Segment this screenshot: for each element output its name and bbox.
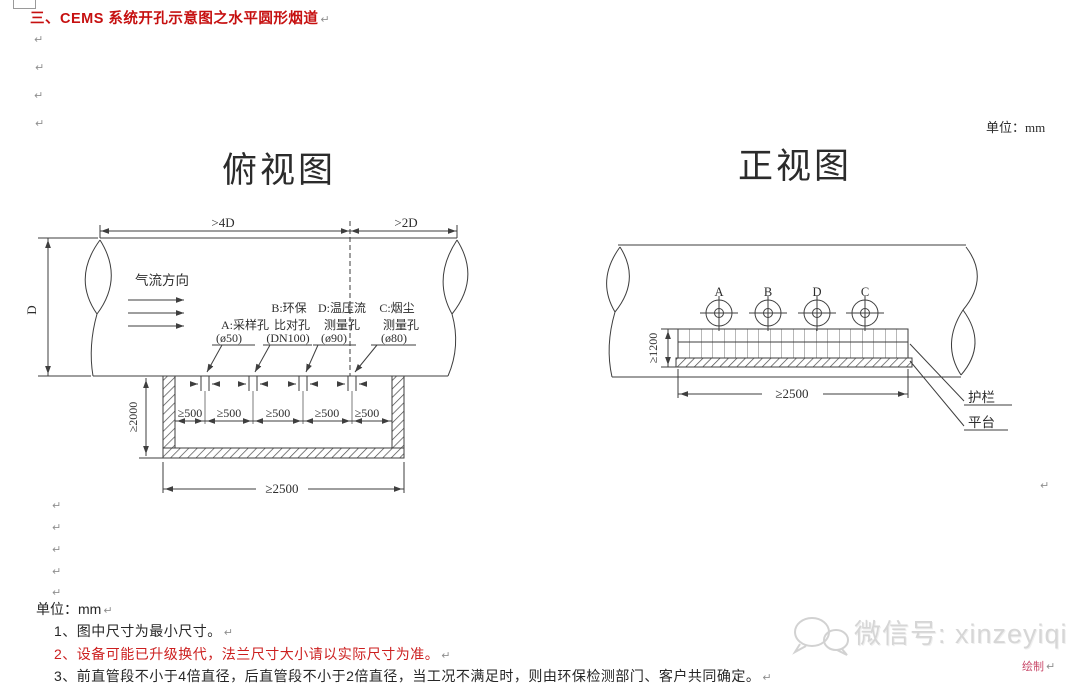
dim-railing-height-label: ≥1200 (646, 333, 660, 364)
hole-d-size: (ø90) (321, 331, 347, 345)
leader-line (306, 345, 318, 372)
front-view-drawing: A B D C ≥1200 (607, 245, 1012, 430)
leader-line (255, 345, 270, 372)
pilcrow-mark: ↵ (441, 650, 451, 662)
draft-label-text: 绘制 (1022, 661, 1044, 673)
railing-callout-label: 护栏 (968, 390, 995, 405)
platform-callout-label: 平台 (968, 415, 995, 430)
cems-drilling-diagram: >4D >2D D 气流方向 A:采样孔 (ø50) B:环保 比对孔 (DN1… (0, 0, 1080, 688)
hole-c-name2: 测量孔 (383, 318, 419, 332)
unit-label-bottom-text: 单位：mm (36, 601, 101, 617)
leader-line (207, 345, 222, 372)
hole-d-name2: 测量孔 (324, 318, 360, 332)
top-view-drawing: >4D >2D D 气流方向 A:采样孔 (ø50) B:环保 比对孔 (DN1… (24, 215, 468, 496)
hole-a-name: A:采样孔 (221, 317, 269, 332)
dim-duct-diameter-label: D (24, 305, 39, 314)
pipe-break-left (85, 240, 111, 376)
dim-platform-depth-label: ≥2000 (126, 402, 140, 433)
hole-b-name: B:环保 (271, 301, 306, 315)
pilcrow-mark: ↵ (1046, 661, 1055, 673)
note-3: 3、前直管段不小于4倍直径，后直管段不小于2倍直径，当工况不满足时，则由环保检测… (54, 666, 772, 686)
hole-target-symbols (700, 296, 884, 331)
dim-upstream-label: >4D (211, 215, 234, 230)
dim-hole-spacing-label: ≥500 (178, 406, 203, 420)
leader-line (355, 345, 377, 372)
note-1: 1、图中尺寸为最小尺寸。↵ (54, 621, 234, 641)
dim-platform-width-label: ≥2500 (265, 481, 298, 496)
pilcrow-mark: ↵ (103, 605, 112, 617)
dim-front-platform-width-label: ≥2500 (775, 386, 808, 401)
pipe-break-left (607, 247, 630, 377)
flow-direction-label: 气流方向 (135, 273, 189, 288)
document-page: 三、CEMS 系统开孔示意图之水平圆形烟道↵ ↵ ↵ ↵ ↵ ↵ ↵ ↵ ↵ ↵… (0, 0, 1080, 688)
note-1-text: 1、图中尺寸为最小尺寸。 (54, 623, 222, 639)
pilcrow-mark: ↵ (224, 627, 234, 639)
pipe-break-right (951, 247, 977, 375)
nozzle-b (238, 376, 268, 424)
unit-label-bottom: 单位：mm↵ (36, 599, 113, 619)
railing-grid (678, 329, 908, 358)
note-2: 2、设备可能已升级换代，法兰尺寸大小请以实际尺寸为准。↵ (54, 644, 451, 664)
pilcrow-mark: ↵ (762, 672, 772, 684)
dim-downstream-label: >2D (394, 215, 417, 230)
platform-strip (676, 358, 912, 367)
nozzle-d (288, 376, 318, 424)
note-2-text: 2、设备可能已升级换代，法兰尺寸大小请以实际尺寸为准。 (54, 646, 439, 662)
note-3-text: 3、前直管段不小于4倍直径，后直管段不小于2倍直径，当工况不满足时，则由环保检测… (54, 668, 760, 684)
wechat-watermark: 微信号: xinzeyiqi (786, 612, 1068, 651)
wechat-watermark-text: 微信号: xinzeyiqi (854, 612, 1068, 651)
hole-b-size: (DN100) (266, 331, 309, 345)
hole-c-size: (ø80) (381, 331, 407, 345)
dim-hole-spacing-label: ≥500 (217, 406, 242, 420)
dim-hole-spacing-label: ≥500 (315, 406, 340, 420)
hole-a-size: (ø50) (216, 331, 242, 345)
extension-line (661, 329, 678, 367)
hole-d-name: D:温压流 (318, 301, 366, 315)
draft-label: 绘制↵ (1022, 658, 1055, 674)
pipe-break-right (443, 240, 468, 376)
hole-b-name2: 比对孔 (274, 318, 310, 332)
hole-c-name: C:烟尘 (379, 301, 414, 315)
dim-hole-spacing-label: ≥500 (266, 406, 291, 420)
dim-hole-spacing-label: ≥500 (355, 406, 380, 420)
